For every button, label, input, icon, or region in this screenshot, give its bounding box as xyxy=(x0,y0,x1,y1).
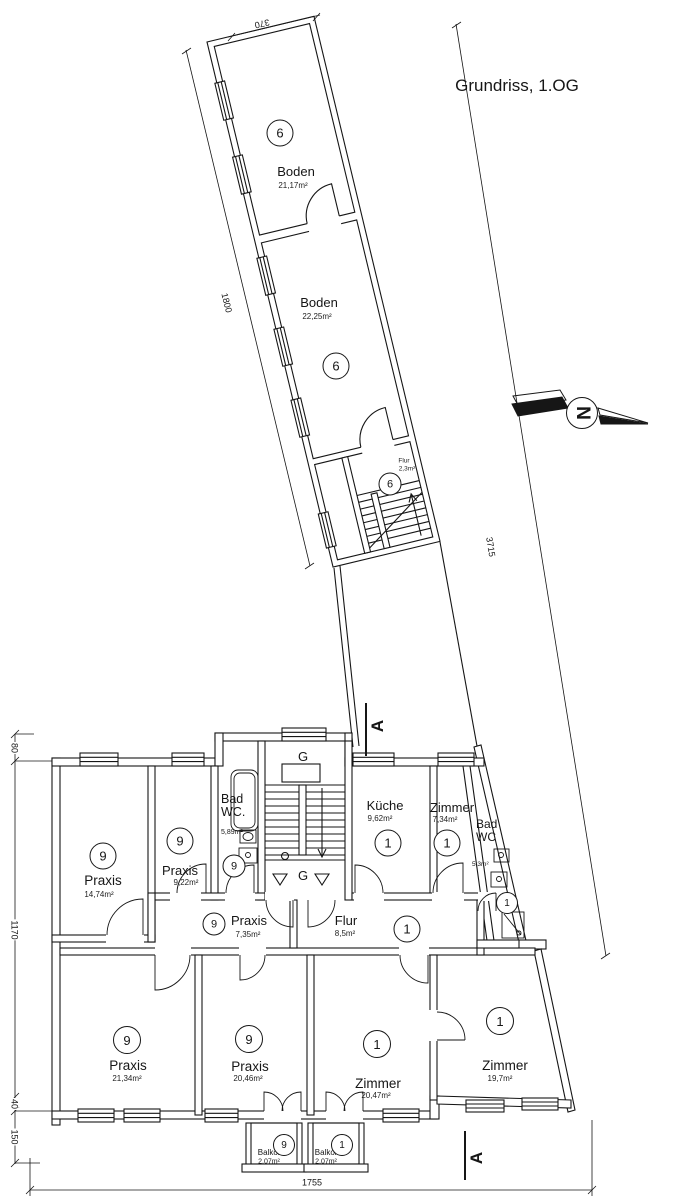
stair-label-bottom: G xyxy=(298,869,308,883)
unit-badge-badwc-9: 9 xyxy=(223,855,246,878)
room-area-praxis-2134: 21,34m² xyxy=(112,1075,141,1083)
room-area-boden1: 21,17m² xyxy=(278,182,307,190)
unit-badge-zimmer-734: 1 xyxy=(434,830,461,857)
section-line-markers xyxy=(366,703,465,1180)
unit-badge-praxis-735: 9 xyxy=(203,913,226,936)
unit-badge-flur: 1 xyxy=(394,916,421,943)
room-area-zimmer-2047: 20,47m² xyxy=(361,1092,390,1100)
room-label-praxis-2134: Praxis xyxy=(109,1059,147,1073)
unit-badge-praxis-2046: 9 xyxy=(235,1025,263,1053)
room-area-badwc-1: 5,3m² xyxy=(472,862,489,869)
room-label-badwc-1: Bad WC xyxy=(476,818,508,843)
room-label-boden2: Boden xyxy=(300,296,338,310)
room-area-flur: 8,5m² xyxy=(335,930,355,938)
dim-left-balcony: 150 xyxy=(9,1128,18,1145)
unit-badge-badwc-1: 1 xyxy=(496,892,518,914)
room-area-praxis-1474: 14,74m² xyxy=(84,891,113,899)
room-label-flur: Flur xyxy=(335,914,357,928)
floorplan-drawing xyxy=(0,0,674,1200)
dim-bottom: 1755 xyxy=(301,1178,323,1187)
room-label-attic-flur: Flur xyxy=(398,459,409,466)
room-area-badwc-9: 5,89m² xyxy=(221,829,243,836)
room-area-boden2: 22,25m² xyxy=(302,313,331,321)
unit-badge-praxis-1474: 9 xyxy=(90,843,117,870)
unit-badge-kueche: 1 xyxy=(375,830,402,857)
stair-label-top: G xyxy=(298,750,308,764)
unit-badge-zimmer-197: 1 xyxy=(486,1007,514,1035)
unit-badge-boden2: 6 xyxy=(323,353,350,380)
dim-left-main: 1170 xyxy=(9,919,18,940)
room-label-praxis-1474: Praxis xyxy=(84,874,122,888)
room-area-praxis-735: 7,35m² xyxy=(236,931,261,939)
room-area-zimmer-197: 19,7m² xyxy=(488,1075,513,1083)
room-label-kueche: Küche xyxy=(367,799,404,813)
room-area-praxis-922: 9,22m² xyxy=(174,879,199,887)
dim-right-diagonal: 3715 xyxy=(484,535,497,558)
room-area-kueche: 9,62m² xyxy=(368,815,393,823)
room-label-badwc-9: Bad WC. xyxy=(221,793,257,819)
page-title: Grundriss, 1.OG xyxy=(455,77,579,95)
unit-badge-praxis-2134: 9 xyxy=(113,1026,141,1054)
unit-badge-zimmer-2047: 1 xyxy=(363,1030,391,1058)
room-area-zimmer-734: 7,34m² xyxy=(433,816,458,824)
side-court-walls xyxy=(334,542,477,747)
unit-badge-praxis-922: 9 xyxy=(167,828,194,855)
unit-badge-balkon-1: 1 xyxy=(331,1134,353,1156)
attic-wing xyxy=(205,16,440,567)
unit-badge-balkon-9: 9 xyxy=(273,1134,295,1156)
room-area-balkon-1: 2,07m² xyxy=(315,1158,337,1165)
dim-left-top: 80 xyxy=(9,742,18,754)
room-area-attic-flur: 2,3m² xyxy=(399,467,416,474)
dim-left-step: 40 xyxy=(9,1098,18,1110)
section-marker-bottom: A xyxy=(468,1152,486,1164)
main-stairwell xyxy=(265,764,345,885)
unit-badge-attic-flur: 6 xyxy=(379,473,402,496)
unit-badge-boden1: 6 xyxy=(267,120,294,147)
room-label-zimmer-734: Zimmer xyxy=(430,801,474,815)
room-label-zimmer-197: Zimmer xyxy=(482,1059,528,1073)
room-label-boden1: Boden xyxy=(277,165,315,179)
section-marker-top: A xyxy=(369,720,387,732)
room-area-praxis-2046: 20,46m² xyxy=(233,1075,262,1083)
floorplan-page: Grundriss, 1.OG 6 Boden 21,17m² Boden 22… xyxy=(0,0,674,1200)
room-label-praxis-922: Praxis xyxy=(162,864,198,878)
room-area-balkon-9: 2,07m² xyxy=(258,1158,280,1165)
north-label: N xyxy=(572,406,592,420)
room-label-praxis-2046: Praxis xyxy=(231,1060,269,1074)
room-label-zimmer-2047: Zimmer xyxy=(355,1077,401,1091)
room-label-praxis-735: Praxis xyxy=(231,914,267,928)
